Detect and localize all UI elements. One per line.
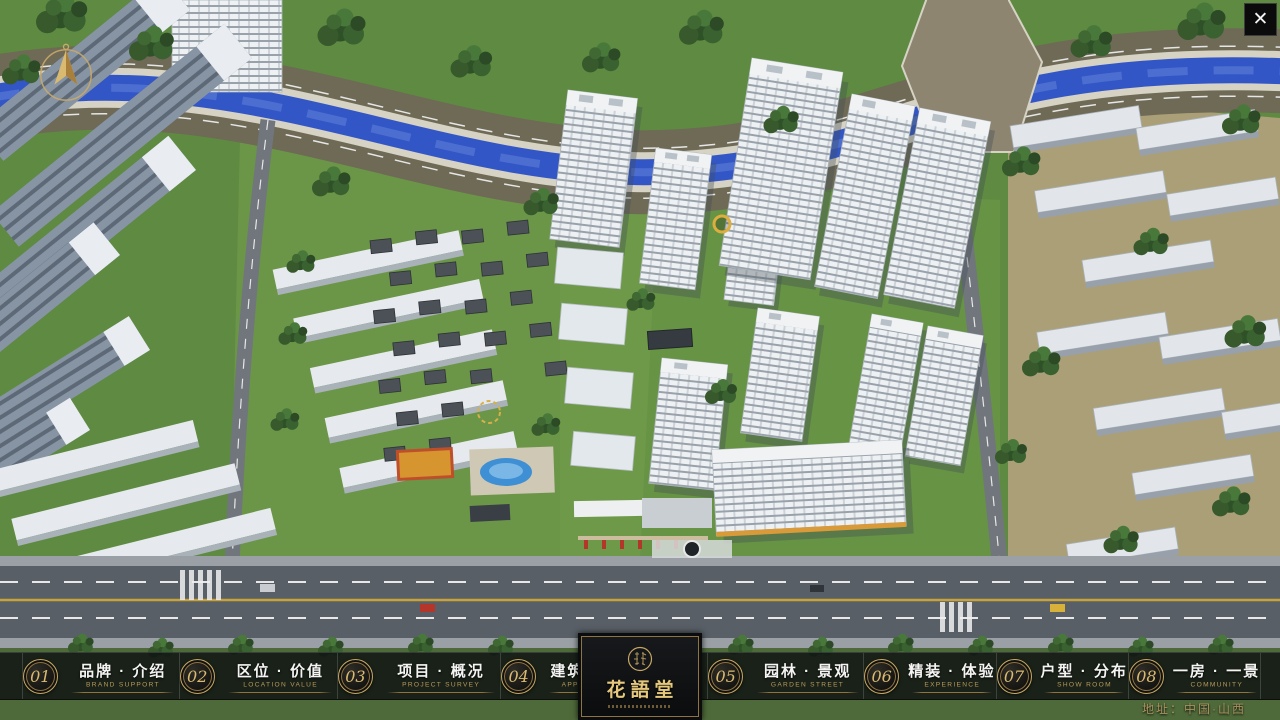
nav-item-project-overview[interactable]: 03 项目 · 概况 PROJECT SURVEY — [337, 653, 500, 699]
sales-app-window: ✕ 01 品牌 · 介绍 BRAND SUPPORT 02 区位 · 价值 LO… — [0, 0, 1280, 720]
nav-number-badge: 08 — [1129, 659, 1164, 694]
nav-label-cn: 精装 · 体验 — [908, 660, 995, 681]
entrance-medallion — [684, 541, 700, 557]
nav-label-cn: 户型 · 分布 — [1041, 660, 1128, 681]
nav-number-badge: 04 — [501, 659, 536, 694]
nav-label-en: GARDEN STREET — [771, 681, 844, 687]
nav-number-badge: 01 — [23, 659, 58, 694]
nav-number-badge: 02 — [180, 659, 215, 694]
logo-seal-icon — [627, 646, 653, 672]
gold-rule — [1176, 692, 1256, 693]
nav-label-cn: 品牌 · 介绍 — [79, 660, 166, 681]
nav-label-en: EXPERIENCE — [924, 681, 980, 687]
nav-label-cn: 项目 · 概况 — [397, 660, 484, 681]
nav-item-location-value[interactable]: 02 区位 · 价值 LOCATION VALUE — [179, 653, 337, 699]
nav-item-garden-landscape[interactable]: 05 园林 · 景观 GARDEN STREET — [707, 653, 863, 699]
brand-subtitle-strip — [608, 705, 672, 708]
nav-label-en: SHOW ROOM — [1057, 681, 1112, 687]
close-icon[interactable]: ✕ — [1244, 3, 1277, 36]
nav-label-cn: 一房 · 一景 — [1173, 660, 1260, 681]
gold-rule — [1044, 692, 1124, 693]
nav-group-right: 05 园林 · 景观 GARDEN STREET 06 精装 · 体验 EXPE… — [707, 653, 1261, 699]
nav-number-badge: 03 — [338, 659, 373, 694]
gold-rule — [228, 692, 332, 693]
project-address: 地址：中国·山西 — [1142, 700, 1246, 717]
traditional-hall-roof — [647, 328, 692, 349]
residential-tower — [712, 440, 914, 544]
gold-rule — [387, 692, 496, 693]
nav-label-en: LOCATION VALUE — [243, 681, 318, 687]
nav-label-cn: 园林 · 景观 — [764, 660, 851, 681]
nav-label-en: BRAND SUPPORT — [86, 681, 160, 687]
nav-label-en: COMMUNITY — [1190, 681, 1243, 687]
navbar-right-pad — [1261, 653, 1280, 699]
gold-landmark — [714, 216, 730, 232]
nav-number-badge: 07 — [997, 659, 1032, 694]
nav-label-cn: 区位 · 价值 — [237, 660, 324, 681]
orange-pavilion — [397, 449, 452, 480]
nav-item-brand-intro[interactable]: 01 品牌 · 介绍 BRAND SUPPORT — [22, 653, 179, 699]
gold-rule — [71, 692, 174, 693]
brand-logo-panel[interactable]: 花語堂 — [578, 633, 702, 720]
compass-north-icon[interactable] — [34, 38, 98, 108]
nav-item-room-with-view[interactable]: 08 一房 · 一景 COMMUNITY — [1128, 653, 1261, 699]
nav-label-en: PROJECT SURVEY — [402, 681, 480, 687]
navbar-left-pad — [0, 653, 22, 699]
nav-item-floorplan-distribution[interactable]: 07 户型 · 分布 SHOW ROOM — [996, 653, 1128, 699]
brand-name: 花語堂 — [606, 675, 678, 702]
nav-number-badge: 06 — [864, 659, 899, 694]
gold-rule — [757, 692, 859, 693]
nav-group-left: 01 品牌 · 介绍 BRAND SUPPORT 02 区位 · 价值 LOCA… — [22, 653, 643, 699]
nav-item-interior-experience[interactable]: 06 精装 · 体验 EXPERIENCE — [863, 653, 995, 699]
nav-number-badge: 05 — [708, 659, 743, 694]
masterplan-3d-view[interactable] — [0, 0, 1280, 720]
gold-rule — [912, 692, 992, 693]
